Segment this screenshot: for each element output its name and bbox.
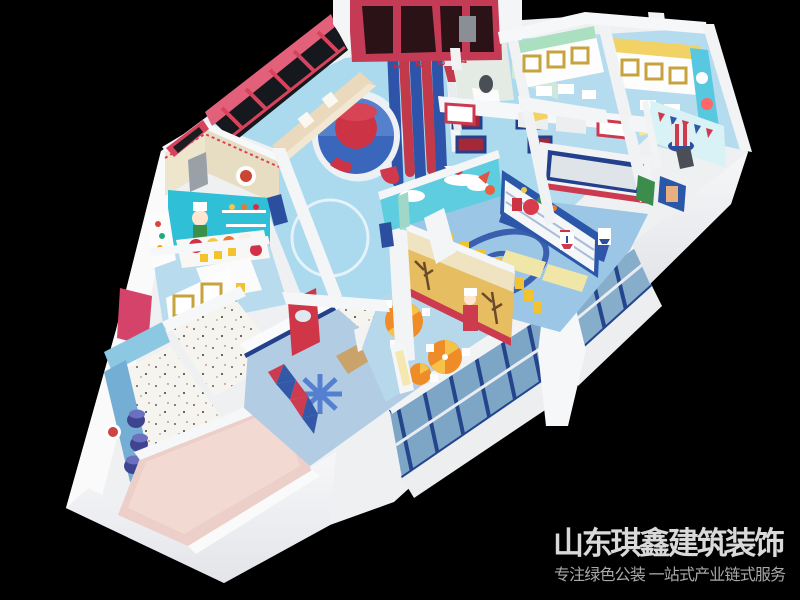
svg-text:专注绿色公装 一站式产业链式服务: 专注绿色公装 一站式产业链式服务	[554, 566, 786, 584]
svg-text:山东琪鑫建筑装饰: 山东琪鑫建筑装饰	[553, 526, 785, 561]
